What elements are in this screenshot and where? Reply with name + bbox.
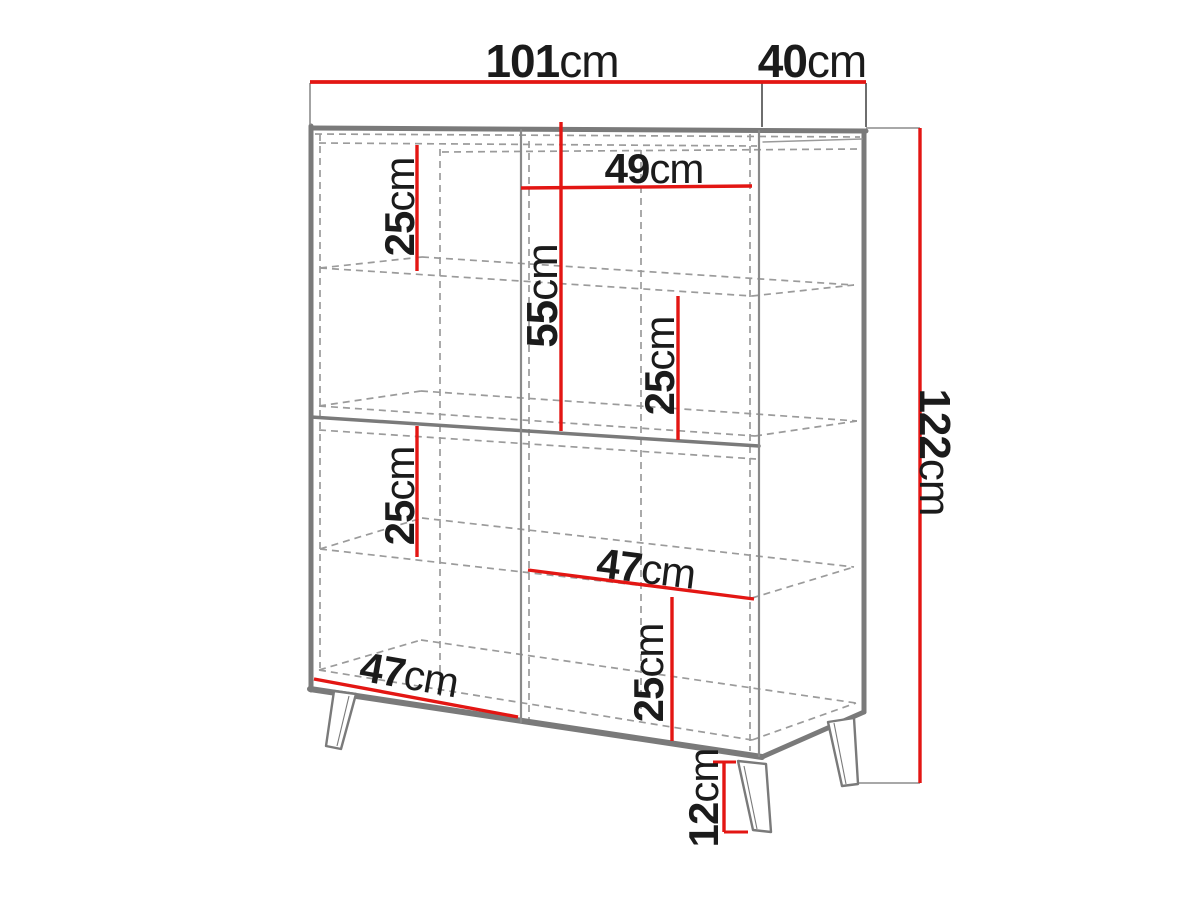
dim-unit: cm: [910, 459, 959, 516]
dim-label-overall-height: 122cm: [912, 388, 956, 515]
dim-value: 25: [376, 212, 423, 257]
dim-value: 47: [594, 539, 644, 591]
dim-value: 101: [485, 35, 559, 87]
dim-value: 122: [910, 388, 959, 458]
dim-unit: cm: [400, 651, 461, 707]
dim-unit: cm: [636, 317, 683, 371]
leg-front-left: [326, 691, 356, 749]
dim-label-upper-inner-width: 49cm: [605, 148, 704, 190]
dim-value: 25: [636, 371, 683, 416]
leg-front-right: [738, 761, 771, 832]
dim-value: 25: [376, 501, 423, 546]
dim-label-upper-section-height: 55cm: [521, 244, 565, 348]
dim-label-upper-left-compartment: 25cm: [379, 158, 421, 257]
dim-unit: cm: [807, 35, 866, 87]
dim-unit: cm: [639, 545, 698, 598]
dim-unit: cm: [649, 145, 703, 192]
dim-label-lower-inner-width: 47cm: [594, 542, 697, 596]
dim-unit: cm: [680, 749, 727, 803]
dim-value: 12: [680, 803, 727, 848]
dim-label-lower-right-compartment: 25cm: [628, 624, 670, 723]
dim-label-lower-left-compartment: 25cm: [379, 447, 421, 546]
dim-unit: cm: [625, 624, 672, 678]
legs: [326, 691, 858, 832]
dim-unit: cm: [376, 447, 423, 501]
cabinet-line-drawing: [0, 0, 1200, 899]
dim-value: 55: [518, 301, 567, 348]
dim-value: 25: [625, 678, 672, 723]
dimension-diagram: 101cm 40cm 49cm 25cm 55cm 25cm 25cm 47cm…: [0, 0, 1200, 899]
leg-rear-right: [828, 718, 858, 786]
top-depth-box: [762, 83, 866, 127]
dim-label-leg-height: 12cm: [683, 749, 725, 848]
dim-unit: cm: [518, 244, 567, 301]
dim-label-upper-right-compartment: 25cm: [639, 317, 681, 416]
dim-unit: cm: [376, 158, 423, 212]
dim-label-overall-width: 101cm: [485, 38, 618, 84]
dim-unit: cm: [559, 35, 618, 87]
dim-value: 49: [605, 145, 650, 192]
dim-label-overall-depth: 40cm: [758, 38, 867, 84]
dim-value: 40: [758, 35, 807, 87]
